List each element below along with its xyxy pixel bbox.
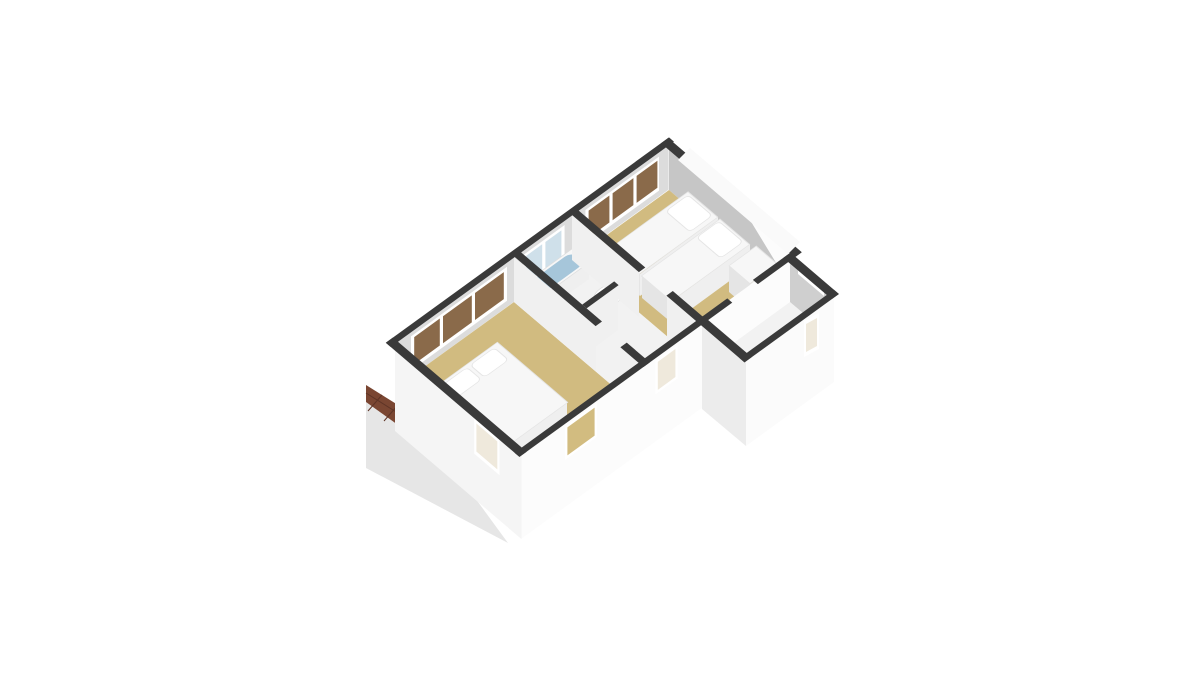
annex-window-pane (806, 318, 817, 352)
floorplan-viewport[interactable] (0, 0, 1200, 675)
floorplan-3d[interactable] (0, 0, 1200, 675)
